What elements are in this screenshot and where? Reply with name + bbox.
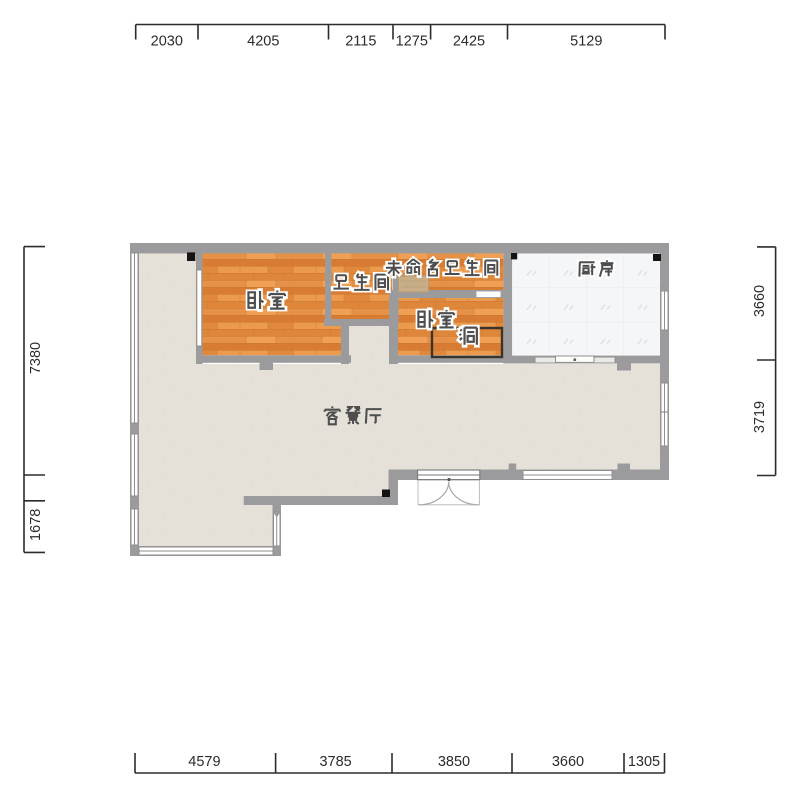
svg-text:3719: 3719 bbox=[752, 401, 768, 433]
svg-text:7380: 7380 bbox=[28, 342, 44, 374]
svg-text:3850: 3850 bbox=[438, 754, 470, 770]
svg-text:2115: 2115 bbox=[345, 34, 376, 50]
svg-text:4579: 4579 bbox=[188, 754, 220, 770]
svg-text:2425: 2425 bbox=[453, 34, 485, 50]
svg-text:1305: 1305 bbox=[628, 754, 660, 770]
svg-text:3660: 3660 bbox=[752, 285, 768, 317]
svg-text:3785: 3785 bbox=[319, 754, 351, 770]
svg-text:3660: 3660 bbox=[552, 754, 584, 770]
svg-text:5129: 5129 bbox=[570, 34, 602, 50]
svg-text:1678: 1678 bbox=[28, 509, 44, 541]
svg-text:1275: 1275 bbox=[396, 34, 428, 50]
svg-text:4205: 4205 bbox=[247, 34, 279, 50]
svg-text:2030: 2030 bbox=[151, 34, 183, 50]
